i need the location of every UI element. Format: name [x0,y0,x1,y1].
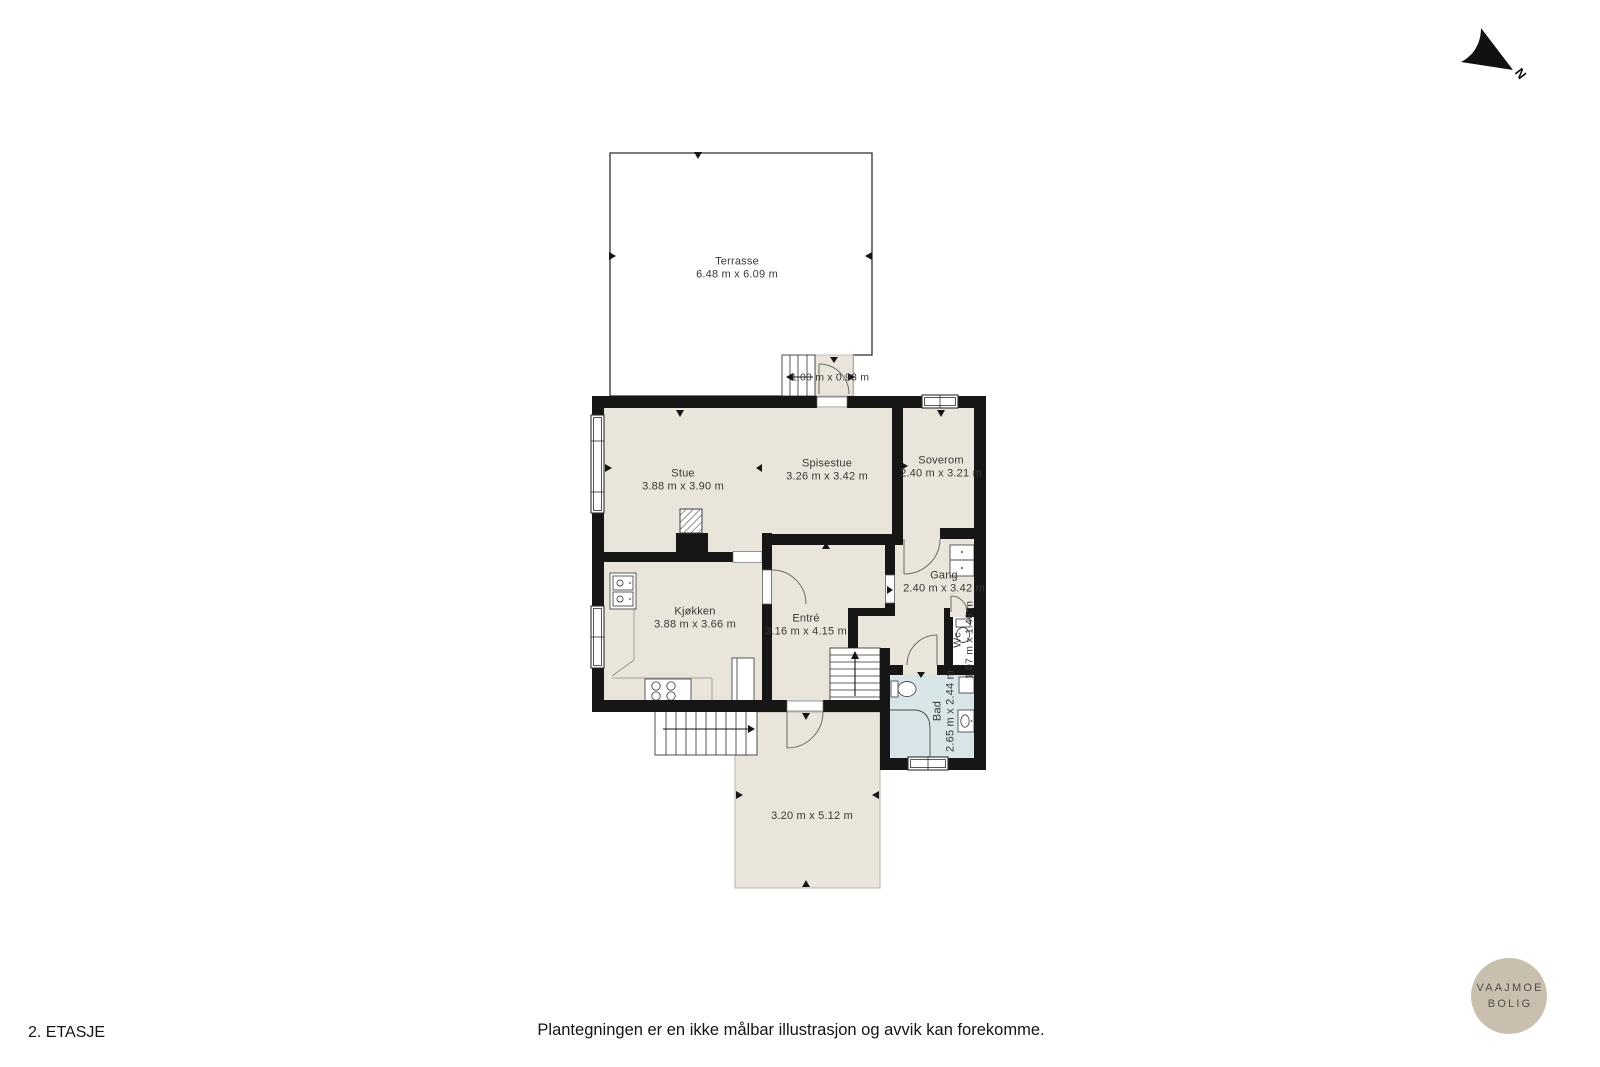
room-label-gang: Gang2.40 m x 3.42 m [903,570,985,595]
room-label-entre: Entré3.16 m x 4.15 m [765,613,847,638]
logo-line2: BOLIG [1486,998,1533,1010]
room-label-spisestue: Spisestue3.26 m x 3.42 m [786,458,868,483]
disclaimer-text: Plantegningen er en ikke målbar illustra… [537,1021,1044,1040]
kitchen-window-icon [591,606,604,668]
room-label-stue: Stue3.88 m x 3.90 m [642,468,724,493]
broker-logo: VAAJMOE BOLIG [1471,958,1547,1034]
north-arrow-icon [1461,28,1513,70]
room-label-terrasse-trapp: 1.00 m x 0.93 m [791,372,869,384]
stue-window-icon [591,415,604,513]
terrace-door-threshold [817,397,847,407]
soverom-window-icon [922,395,958,408]
room-label-bad: Bad2.65 m x 2.44 m [932,670,957,752]
interior-stairs-icon [830,648,880,702]
room-label-terrasse: Terrasse6.48 m x 6.09 m [696,256,778,281]
room-label-soverom: Soverom2.40 m x 3.21 m [900,455,982,480]
bath-toilet-icon [891,681,916,697]
logo-line1: VAAJMOE [1474,982,1543,994]
kitchen-sink-icon [610,573,636,609]
fridge-icon [732,658,754,702]
stove-icon [645,679,691,702]
room-label-kjokken: Kjøkken3.88 m x 3.66 m [654,606,736,631]
room-label-terrasse-nede: 3.20 m x 5.12 m [771,810,853,823]
room-label-wc: Wc1.07 m x 1.46 m [953,601,976,679]
bath-sink-icon [958,710,974,732]
bath-cabinet-icon [959,677,974,693]
floorplan-page: Terrasse6.48 m x 6.09 m 1.00 m x 0.93 m … [0,0,1600,1067]
bath-window-icon [908,757,948,770]
floorplan-drawing [0,0,1600,1067]
floor-label: 2. ETASJE [28,1024,105,1042]
